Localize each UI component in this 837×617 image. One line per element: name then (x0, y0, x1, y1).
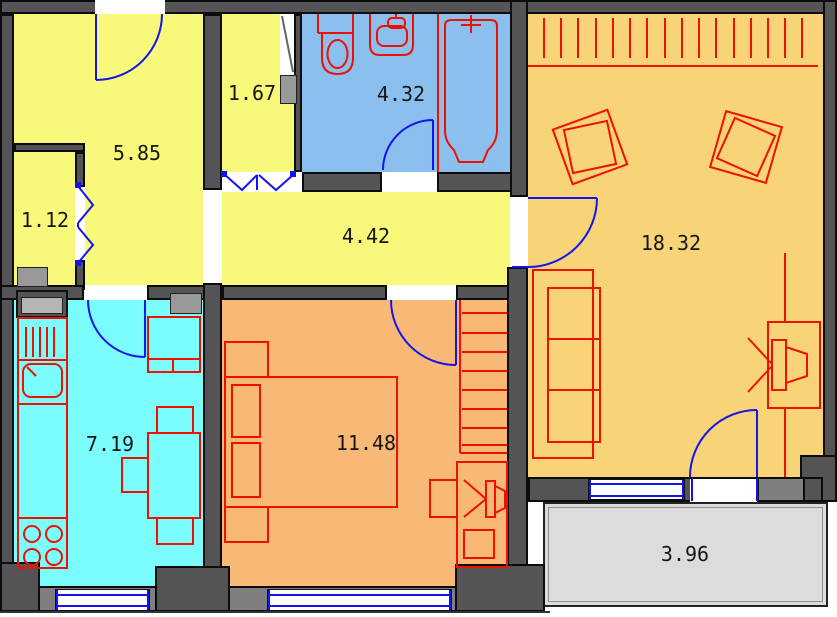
entry-door-opening (95, 0, 165, 14)
area-label-bathroom: 4.32 (377, 82, 425, 106)
pier-bottom-middle (155, 566, 230, 612)
wall-left (0, 14, 14, 592)
wall-corridor-south-right (456, 285, 512, 300)
wall-entrance-storage (203, 14, 222, 190)
closet-door-opening (75, 187, 85, 260)
wall-corridor-south-left (222, 285, 387, 300)
floor-plan: 5.85 1.12 1.67 4.32 4.42 7.19 11.48 18.3… (0, 0, 837, 617)
wall-living-south-face (757, 477, 805, 502)
wall-bedroom-living (507, 267, 528, 580)
wall-bathroom-living (510, 0, 528, 197)
area-label-living: 18.32 (641, 231, 701, 255)
living-window (588, 479, 685, 500)
meter-box-kitchen (170, 293, 202, 314)
balcony-door-opening (690, 479, 757, 502)
wall-closet-top (14, 143, 85, 152)
area-label-balcony: 3.96 (661, 542, 709, 566)
area-label-bedroom: 11.48 (336, 431, 396, 455)
pier-bottom-right (455, 564, 545, 612)
plan-bottom-edge (0, 611, 550, 613)
wall-bathroom-south-left (302, 172, 382, 192)
wall-right (823, 0, 837, 460)
meter-box-closet (17, 267, 48, 287)
area-label-storage: 1.67 (228, 81, 276, 105)
wall-bathroom-south-right (437, 172, 512, 192)
bedroom-window (267, 589, 452, 611)
pier-bottom-left (0, 562, 40, 612)
storage-accordion-door (221, 171, 296, 190)
shaft-niche (280, 14, 294, 75)
area-label-kitchen: 7.19 (86, 432, 134, 456)
wall-kitchen-bedroom (203, 283, 222, 586)
wall-closet-right-upper (75, 152, 85, 187)
kitchen-window (55, 589, 150, 611)
area-label-entrance-hall: 5.85 (113, 141, 161, 165)
area-label-closet: 1.12 (21, 208, 69, 232)
vent-shaft-kitchen-inner (21, 297, 63, 314)
riser-box-storage (280, 75, 297, 104)
area-label-corridor: 4.42 (342, 224, 390, 248)
